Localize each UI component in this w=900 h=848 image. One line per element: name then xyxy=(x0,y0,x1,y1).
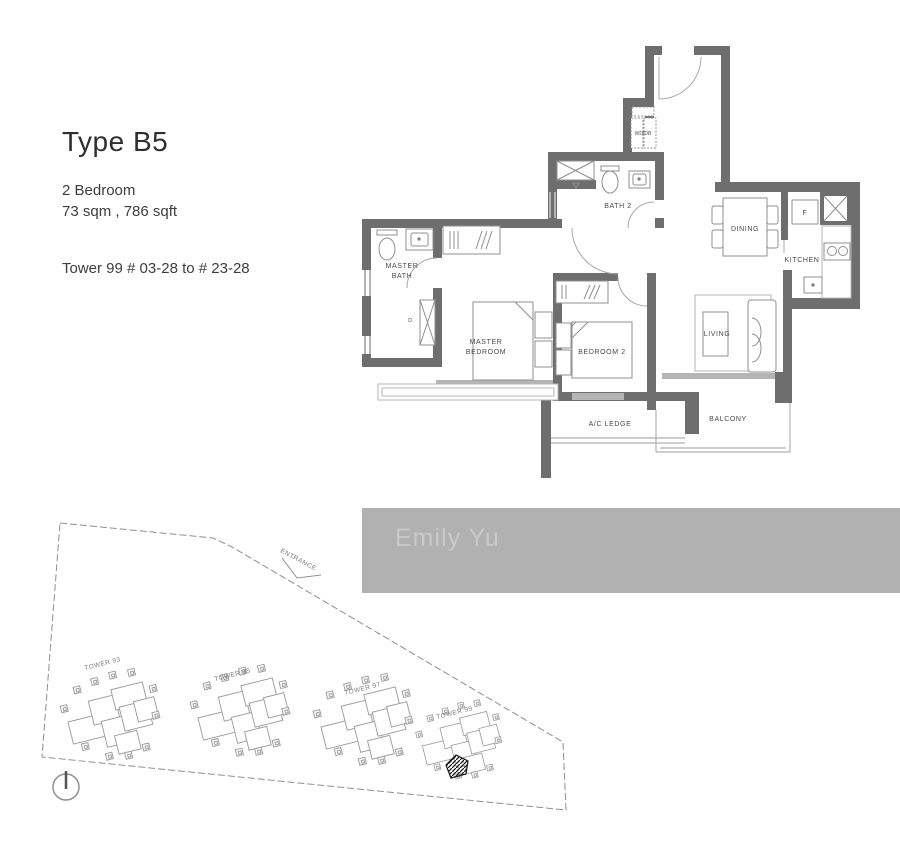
bedroom2-label: BEDROOM 2 xyxy=(578,349,625,356)
tower-93-label: TOWER 93 xyxy=(84,656,122,672)
fridge-label: F xyxy=(803,210,808,217)
plan-drawing: WD/DB BATH 2 MASTER BATH D MASTER BEDROO… xyxy=(0,0,900,848)
bath2-label: BATH 2 xyxy=(604,203,632,210)
living-label: LIVING xyxy=(704,331,731,338)
entrance-label: ENTRANCE xyxy=(279,548,318,573)
floorplan: WD/DB BATH 2 MASTER BATH D MASTER BEDROO… xyxy=(362,46,860,478)
tower-95-label: TOWER 95 xyxy=(214,667,252,683)
kitchen-label: KITCHEN xyxy=(785,257,820,264)
balcony-label: BALCONY xyxy=(709,416,747,423)
dining-label: DINING xyxy=(731,226,759,233)
watermark-bar: Emily Yu xyxy=(362,508,900,593)
fixtures xyxy=(377,107,851,400)
watermark-text: Emily Yu xyxy=(362,508,900,553)
tower-93-footprint xyxy=(55,662,171,771)
master-bedroom-label-2: BEDROOM xyxy=(466,349,506,356)
railings xyxy=(551,403,790,452)
floorplan-page: Type B5 2 Bedroom 73 sqm , 786 sqft Towe… xyxy=(0,0,900,848)
master-bath-label-1: MASTER xyxy=(386,263,419,270)
ac-ledge-label: A/C LEDGE xyxy=(589,421,632,428)
compass-icon xyxy=(53,771,79,800)
master-bath-label-2: BATH xyxy=(392,273,413,280)
utility-door-label: D xyxy=(408,318,412,324)
master-bedroom-label-1: MASTER xyxy=(470,339,503,346)
wd-db-label: WD/DB xyxy=(635,131,652,137)
